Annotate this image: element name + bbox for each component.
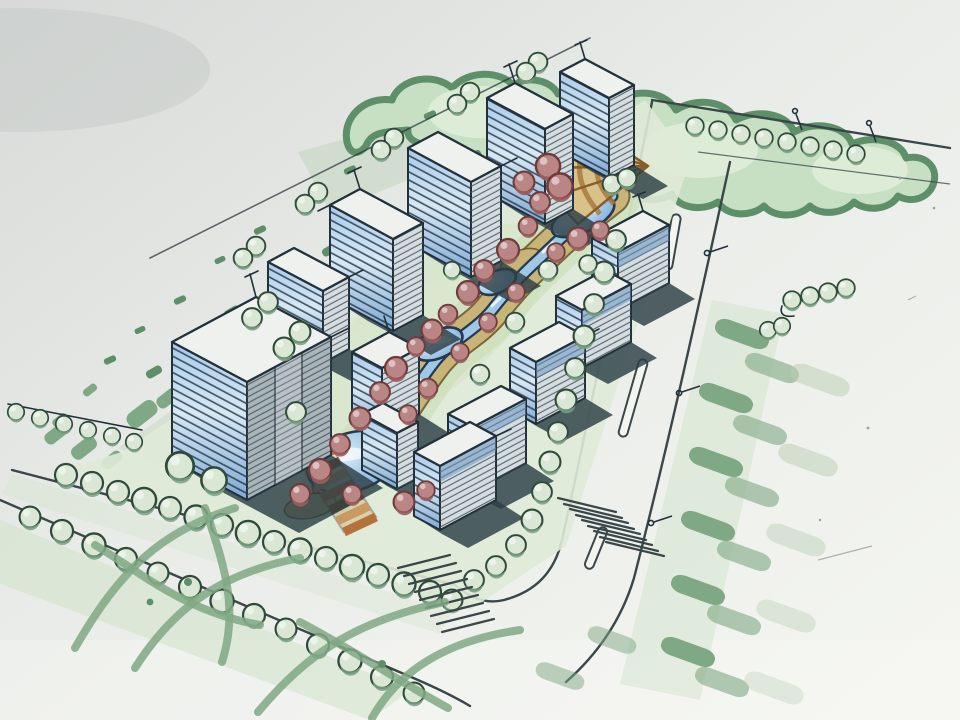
- site-plan-sketch: Hand-drawn residential district master p…: [0, 0, 960, 720]
- photo-of-sketch: Hand-drawn residential district master p…: [0, 0, 960, 720]
